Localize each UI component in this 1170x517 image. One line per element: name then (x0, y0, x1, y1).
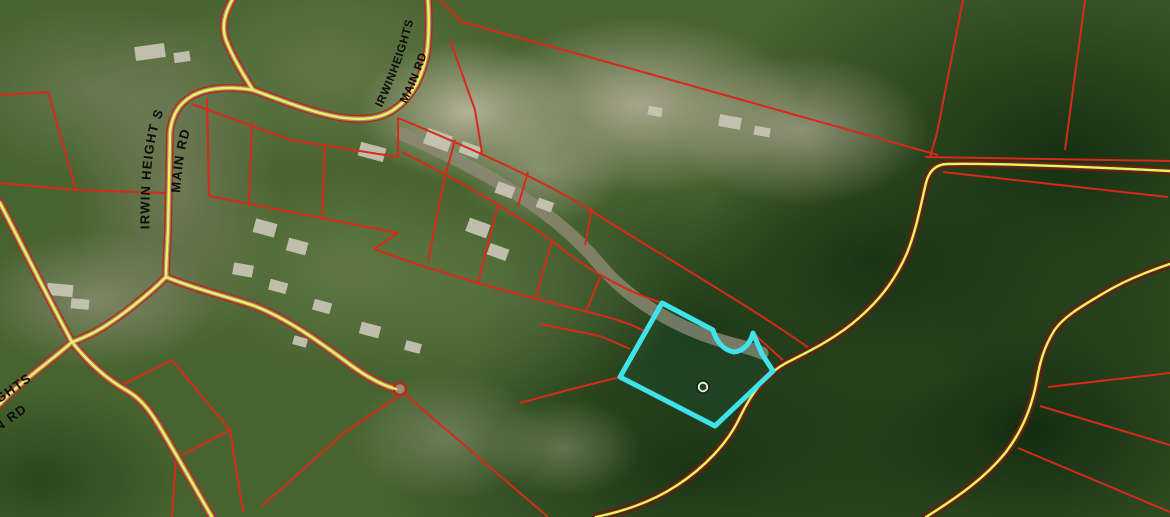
selected-parcel-highlight[interactable] (620, 303, 773, 426)
dirt-track (402, 134, 762, 353)
road-label-irwin-heights-left: IRWIN HEIGHT S (137, 106, 166, 229)
road-label-main-rd-bottom-left: AIN RD (0, 401, 30, 444)
parcel-boundaries (0, 0, 1170, 517)
roads (0, 0, 1170, 517)
map-viewport[interactable]: IRWIN HEIGHT S MAIN RD IRWINHEIGHTS MAIN… (0, 0, 1170, 517)
map-overlay: IRWIN HEIGHT S MAIN RD IRWINHEIGHTS MAIN… (0, 0, 1170, 517)
